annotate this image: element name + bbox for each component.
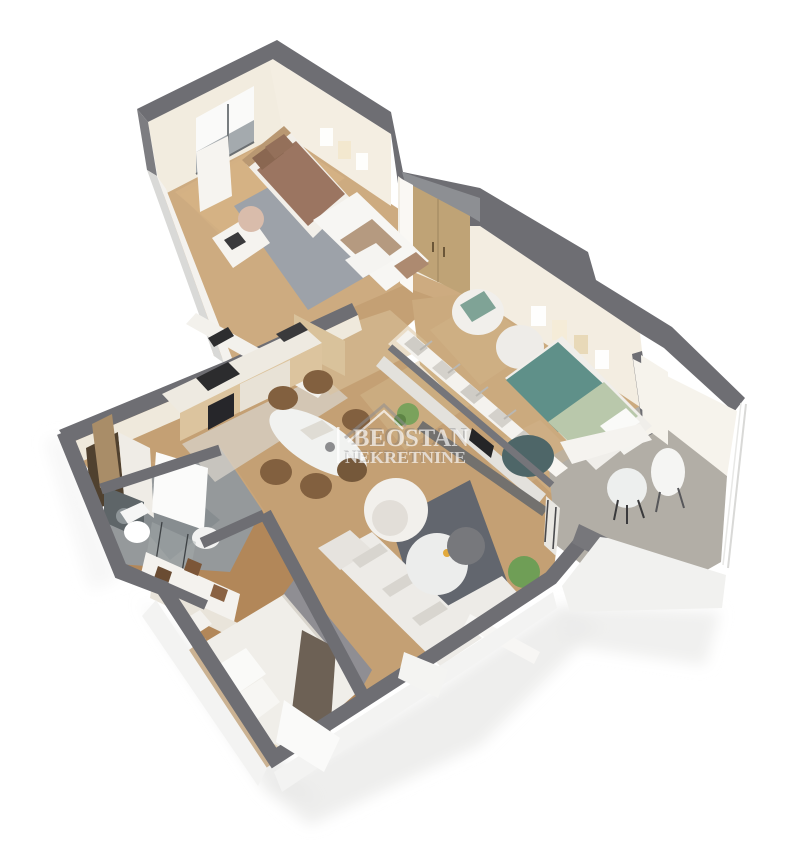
svg-text:NEKRETNINE: NEKRETNINE [345,448,466,467]
